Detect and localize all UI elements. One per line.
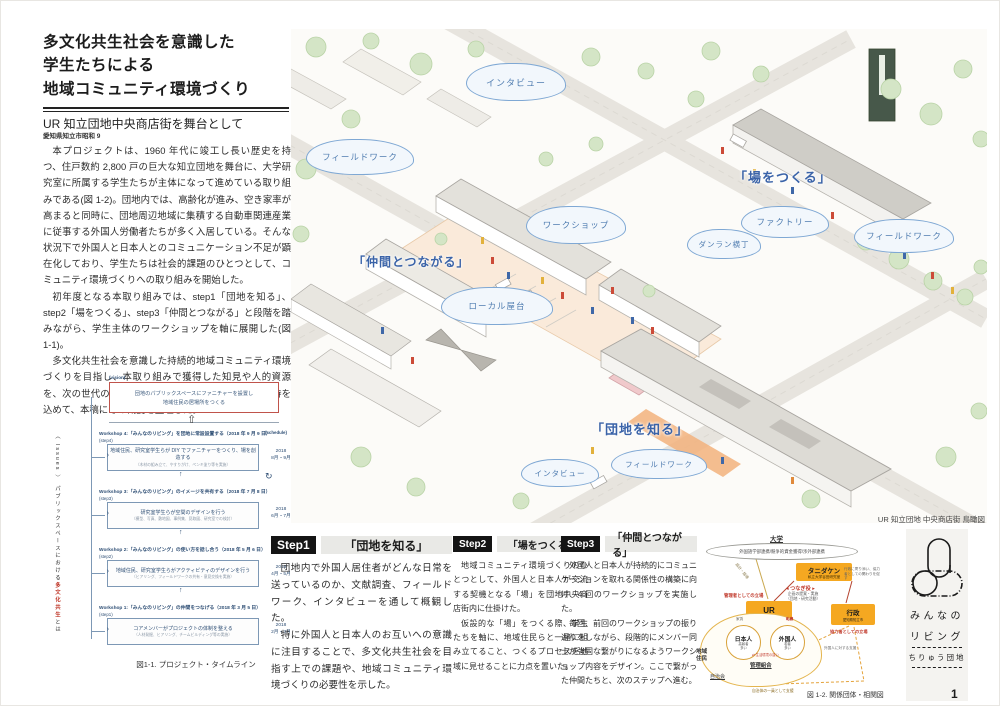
relation-diagram: 大学 外国語学部連携/競争的資金獲得/渉外部連携 タニダケン 私立大学谷田研究室…: [694, 531, 882, 699]
issue-arrow: [91, 631, 105, 632]
cloud-label: インタビュー: [466, 63, 566, 101]
step1-paragraph: 団地内で外国人居住者がどんな日常を送っているのか、文献調査、フィールドワーク、イ…: [271, 561, 452, 628]
foreigner-detail: 若者 多い: [784, 643, 791, 651]
cloud-label: ダンラン横丁: [687, 229, 761, 259]
step2-badge: Step2: [453, 536, 492, 552]
university-label: 大学: [770, 533, 783, 543]
workshop-box: 地域住民、研究室学生らがアクティビティのデザインを行う （ヒアリング、フィールド…: [107, 560, 259, 587]
arrow-up-icon: ↑: [179, 587, 183, 594]
workshop-3-block: Workshop 3:「みんなのリビング」のイメージを共有する（2018 年 7…: [99, 488, 295, 540]
japanese-detail: 高齢者 多い: [739, 643, 749, 651]
workshop-box: 研究室学生らが空間のデザインを行う （模型、写真、敷地図、事例集、見取図、研究室…: [107, 502, 259, 529]
step1-title: 「団地を知る」: [321, 536, 452, 554]
workshop-heading: Workshop 3:「みんなのリビング」のイメージを共有する（2018 年 7…: [99, 488, 281, 495]
gov-note: 行政に寄り添い、協力者としての関わりを促す: [844, 567, 882, 581]
support-municipality-label: 自治体の一員として支援: [752, 689, 794, 694]
connector-role: ◂ つなぎ役 ▸: [786, 585, 815, 592]
step-label: (step3): [99, 496, 113, 501]
label-connect-friends: 「仲間とつながる」: [353, 253, 470, 270]
logo-text-living: リビング: [910, 628, 964, 643]
cloud-label: ファクトリー: [741, 206, 829, 238]
workshop-box: コアメンバーがプロジェクトの体制を整える （人材発掘、ヒアリング、チームビルディ…: [107, 618, 259, 645]
workshop-heading: Workshop 2:「みんなのリビング」の使い方を話し合う（2018 年 5 …: [99, 546, 281, 553]
friction-label: 軋轢: [786, 617, 793, 622]
cloud-label: フィールドワーク: [854, 219, 954, 253]
site-illustration: インタビュー フィールドワーク ワークショップ ファクトリー ダンラン横丁 フィ…: [291, 29, 987, 523]
report-page: 多文化共生社会を意識した 学生たちによる 地域コミュニティ環境づくり UR 知立…: [0, 0, 1000, 706]
title-rule: [43, 107, 289, 112]
figure-1-1-caption: 図1-1. プロジェクト・タイムライン: [101, 659, 291, 670]
supporter-role-label: 協力者としての立場: [830, 629, 868, 635]
issues-vertical-label: 〈 Issues 〉 パブリックスペースにおける多文化共生とは: [53, 433, 61, 663]
label-know-danchi: 「団地を知る」: [591, 419, 689, 438]
logo-text-minna: みんなの: [910, 607, 964, 622]
management-union-label: 管理組合: [750, 661, 772, 669]
support-foreigners-label: 外国人に対する支援: [824, 646, 866, 651]
intro-paragraph: 本プロジェクトは、1960 年代に竣工し長い歴史を持つ、住戸数約 2,800 戸…: [43, 143, 291, 289]
step3-paragraph: 外国人と日本人が持続的にコミュニケーションを取れる関係性の構築に向け、4 回のワ…: [561, 559, 697, 617]
site-location: 愛知県知立市昭和 9: [43, 130, 100, 140]
step3-badge: Step3: [561, 536, 600, 552]
step1-section: Step1 「団地を知る」 団地内で外国人居住者がどんな日常を送っているのか、文…: [271, 536, 452, 695]
workshop-4-block: Workshop 4:「みんなのリビング」を団地に常設設置する（2018 年 9…: [99, 430, 295, 482]
vision-label: (vision): [109, 375, 125, 380]
workshop-1-block: Workshop 1:「みんなのリビング」の仲間をつなげる（2018 年 3 月…: [99, 604, 295, 656]
arrow-up-icon: ↑: [179, 471, 183, 478]
step3-paragraph: 毎回、前回のワークショップの振り返りをしながら、段階的にメンバー同士が強固な繋が…: [561, 617, 697, 689]
illustration-caption: UR 知立団地 中央商店街 鳥瞰図: [743, 514, 985, 525]
issues-tail: とは: [54, 619, 60, 634]
manager-role-label: 管理者としての立場: [724, 593, 763, 599]
workshop-main: コアメンバーがプロジェクトの体制を整える: [133, 625, 233, 632]
issues-text: パブリックスペースにおける: [54, 486, 60, 582]
title-line: 学生たちによる: [43, 54, 293, 77]
step1-paragraph: 特に外国人と日本人のお互いへの意識に注目することで、多文化共生社会を目指す上での…: [271, 628, 452, 695]
issue-arrow: [91, 515, 105, 516]
lab-detail: 私立大学谷田研究室: [808, 575, 840, 580]
workshop-main: 地域住民、研究室学生らがアクティビティのデザインを行う: [116, 567, 250, 574]
workshop-sub: （木材の組み立て、やすりがけ、ペンキ塗り等を実施）: [136, 463, 231, 468]
project-timeline-figure: (vision) 団地のパブリックスペースにファニチャーを設置し 地域住民の居場…: [41, 375, 293, 671]
neighborhood-assoc-label: 自治会: [710, 673, 725, 680]
intro-paragraph: 初年度となる本取り組みでは、step1「団地を知る」、step2「場をつくる」、…: [43, 289, 291, 354]
cloud-label: ワークショップ: [526, 206, 626, 244]
cloud-label: フィールドワーク: [611, 449, 707, 479]
workshop-main: 地域住民、研究室学生らが DIY でファニチャーをつくり、場を創造する: [108, 447, 258, 461]
goal-line: 団地のパブリックスペースにファニチャーを設置し: [135, 390, 253, 397]
gov-name: 行政: [847, 607, 860, 617]
step-label: (step2): [99, 554, 113, 559]
arrow-up-icon: ↑: [179, 529, 183, 536]
workshop-sub: （ヒアリング、フィールドワークの共有・意見交換を実施）: [132, 575, 234, 580]
step3-section: Step3 「仲間とつながる」 外国人と日本人が持続的にコミュニケーションを取れ…: [561, 536, 697, 689]
logo-text-chiryu: ちりゅう団地: [909, 652, 966, 663]
label-place-making: 「場をつくる」: [734, 167, 832, 186]
cloud-label: ローカル屋台: [441, 287, 553, 325]
project-logo-card: みんなの リビング ちりゅう団地: [906, 529, 968, 701]
government-box: 行政 愛知県知立市: [831, 604, 875, 625]
figure-1-2-caption: 図 1-2. 関係団体・相関図: [807, 689, 884, 699]
gov-detail: 愛知県知立市: [843, 617, 863, 622]
title-line: 地域コミュニティ環境づくり: [43, 78, 293, 101]
cloud-label: フィールドワーク: [306, 139, 414, 175]
living-logo-icon: [910, 537, 964, 601]
page-title: 多文化共生社会を意識した 学生たちによる 地域コミュニティ環境づくり: [43, 31, 293, 101]
logo-divider: [912, 667, 962, 668]
lifestyle-gap-label: ⇄ 生活環境の違い: [752, 652, 779, 657]
workshop-heading: Workshop 4:「みんなのリビング」を団地に常設設置する（2018 年 9…: [99, 430, 281, 437]
timeline-axis: [91, 397, 92, 639]
workshop-main: 研究室学生らが空間のデザインを行う: [140, 509, 225, 516]
university-ellipse: 外国語学部連携/競争的資金獲得/渉外部連携: [706, 543, 858, 560]
cloud-label: インタビュー: [521, 459, 599, 487]
step-label: (step1): [99, 612, 113, 617]
rent-label: 家賃: [736, 617, 743, 622]
lab-name: タニダケン: [808, 565, 840, 575]
page-number: 1: [951, 687, 958, 701]
goal-line: 地域住民の居場所をつくる: [163, 399, 225, 406]
workshop-heading: Workshop 1:「みんなのリビング」の仲間をつなげる（2018 年 3 月…: [99, 604, 281, 611]
step-label: (step4): [99, 438, 113, 443]
title-line: 多文化共生社会を意識した: [43, 31, 293, 54]
residents-label: 地域 住民: [696, 649, 710, 662]
issues-red-text: 多文化共生: [54, 582, 60, 619]
workshop-sub: （模型、写真、敷地図、事例集、見取図、研究室での検討）: [132, 517, 235, 522]
step3-title: 「仲間とつながる」: [605, 536, 697, 552]
timeline-goal-box: 団地のパブリックスペースにファニチャーを設置し 地域住民の居場所をつくる: [109, 382, 279, 413]
workshop-box: 地域住民、研究室学生らが DIY でファニチャーをつくり、場を創造する （木材の…: [107, 444, 259, 471]
issue-arrow: [91, 573, 105, 574]
issues-bracket: 〈 Issues 〉: [54, 433, 60, 482]
step1-badge: Step1: [271, 536, 316, 554]
workshop-sub: （人材発掘、ヒアリング、チームビルディング等の実施）: [134, 633, 232, 638]
arrow-up-icon: ⇧: [187, 413, 196, 426]
logo-divider: [912, 647, 962, 648]
issue-arrow: [91, 457, 105, 458]
workshop-2-block: Workshop 2:「みんなのリビング」の使い方を話し合う（2018 年 5 …: [99, 546, 295, 598]
